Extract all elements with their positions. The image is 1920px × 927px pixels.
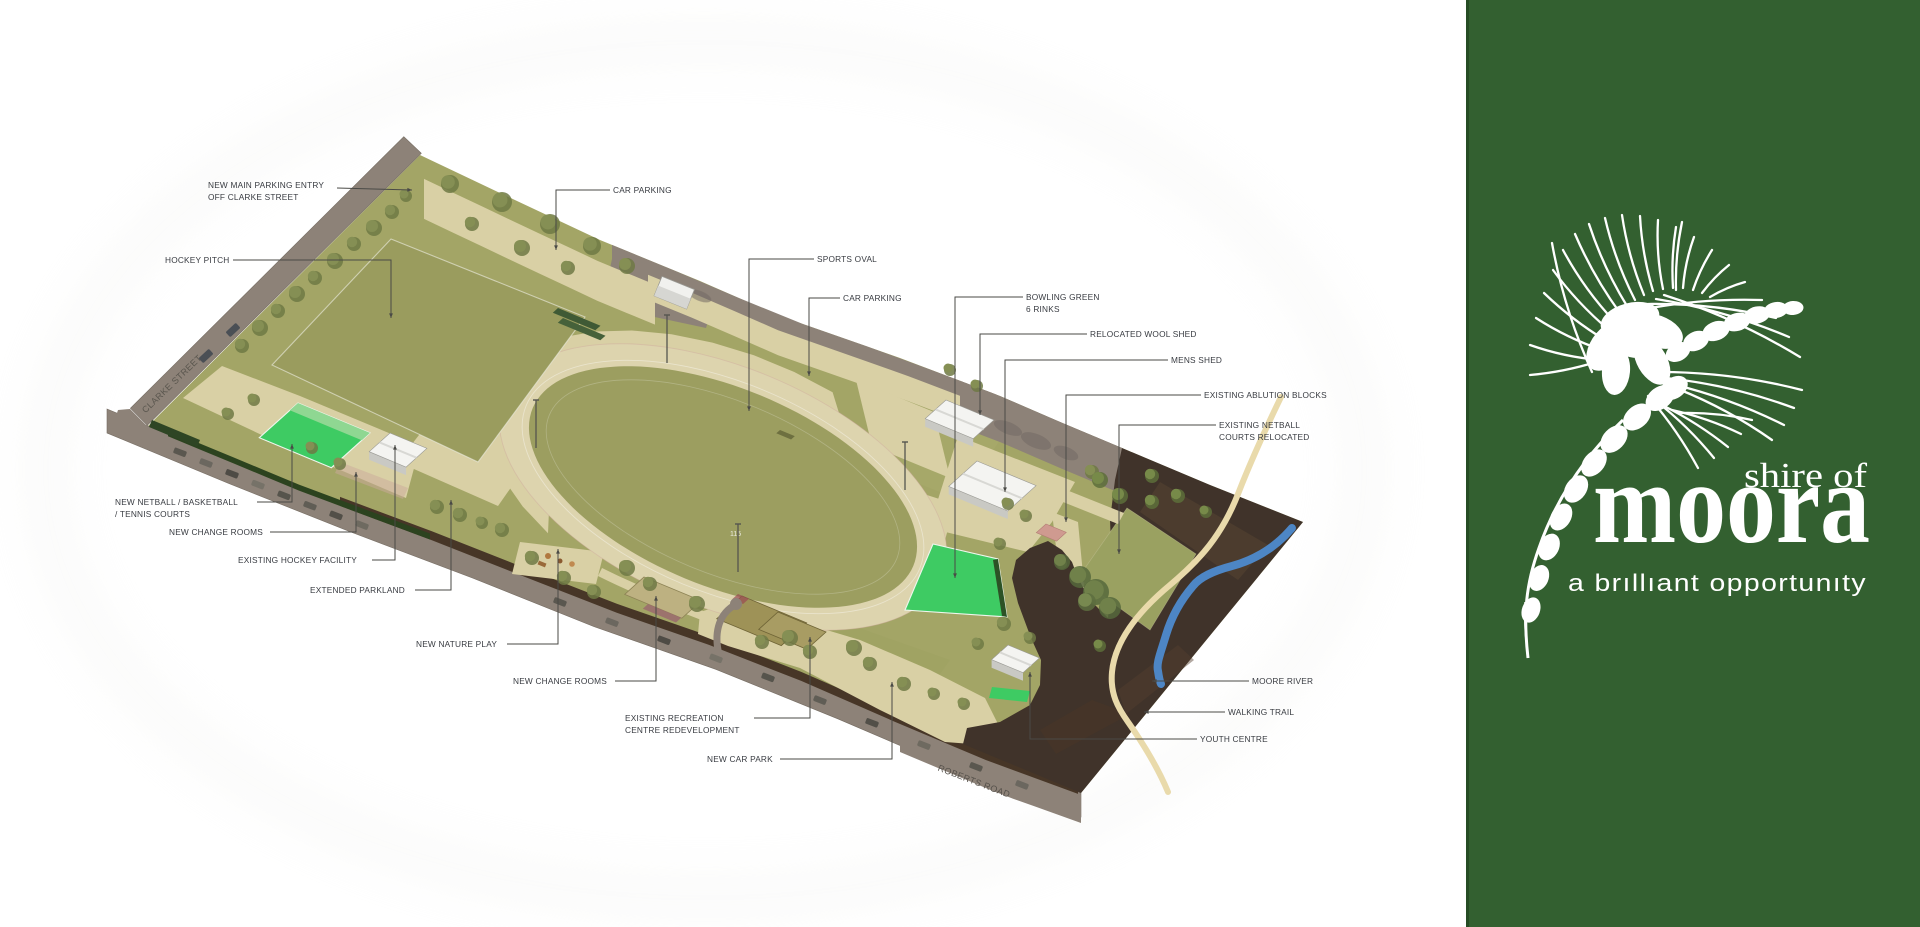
svg-text:moora: moora [1593, 440, 1870, 568]
svg-text:NEW CHANGE ROOMS: NEW CHANGE ROOMS [513, 676, 607, 686]
svg-text:YOUTH CENTRE: YOUTH CENTRE [1200, 734, 1268, 744]
svg-text:NEW CAR PARK: NEW CAR PARK [707, 754, 773, 764]
svg-text:115: 115 [730, 531, 741, 538]
svg-text:CAR PARKING: CAR PARKING [843, 293, 902, 303]
svg-text:NEW NATURE PLAY: NEW NATURE PLAY [416, 639, 497, 649]
svg-text:EXISTING ABLUTION BLOCKS: EXISTING ABLUTION BLOCKS [1204, 390, 1327, 400]
svg-text:/ TENNIS COURTS: / TENNIS COURTS [115, 509, 190, 519]
svg-text:MENS SHED: MENS SHED [1171, 355, 1222, 365]
svg-text:CENTRE REDEVELOPMENT: CENTRE REDEVELOPMENT [625, 725, 740, 735]
svg-text:EXISTING HOCKEY FACILITY: EXISTING HOCKEY FACILITY [238, 555, 357, 565]
svg-text:MOORE RIVER: MOORE RIVER [1252, 676, 1313, 686]
svg-text:WALKING TRAIL: WALKING TRAIL [1228, 707, 1294, 717]
svg-text:COURTS RELOCATED: COURTS RELOCATED [1219, 432, 1309, 442]
svg-text:HOCKEY PITCH: HOCKEY PITCH [165, 255, 230, 265]
svg-text:NEW NETBALL / BASKETBALL: NEW NETBALL / BASKETBALL [115, 497, 238, 507]
svg-text:NEW MAIN PARKING ENTRY: NEW MAIN PARKING ENTRY [208, 180, 324, 190]
svg-text:RELOCATED WOOL SHED: RELOCATED WOOL SHED [1090, 329, 1197, 339]
svg-text:EXISTING RECREATION: EXISTING RECREATION [625, 713, 724, 723]
svg-text:NEW CHANGE ROOMS: NEW CHANGE ROOMS [169, 527, 263, 537]
svg-text:EXTENDED PARKLAND: EXTENDED PARKLAND [310, 585, 405, 595]
svg-text:SPORTS OVAL: SPORTS OVAL [817, 254, 877, 264]
svg-text:EXISTING NETBALL: EXISTING NETBALL [1219, 420, 1300, 430]
svg-text:BOWLING GREEN: BOWLING GREEN [1026, 292, 1100, 302]
svg-text:6 RINKS: 6 RINKS [1026, 304, 1060, 314]
svg-text:a brıllıant opportunıty: a brıllıant opportunıty [1568, 570, 1867, 597]
svg-text:OFF CLARKE STREET: OFF CLARKE STREET [208, 192, 299, 202]
svg-text:CAR PARKING: CAR PARKING [613, 185, 672, 195]
